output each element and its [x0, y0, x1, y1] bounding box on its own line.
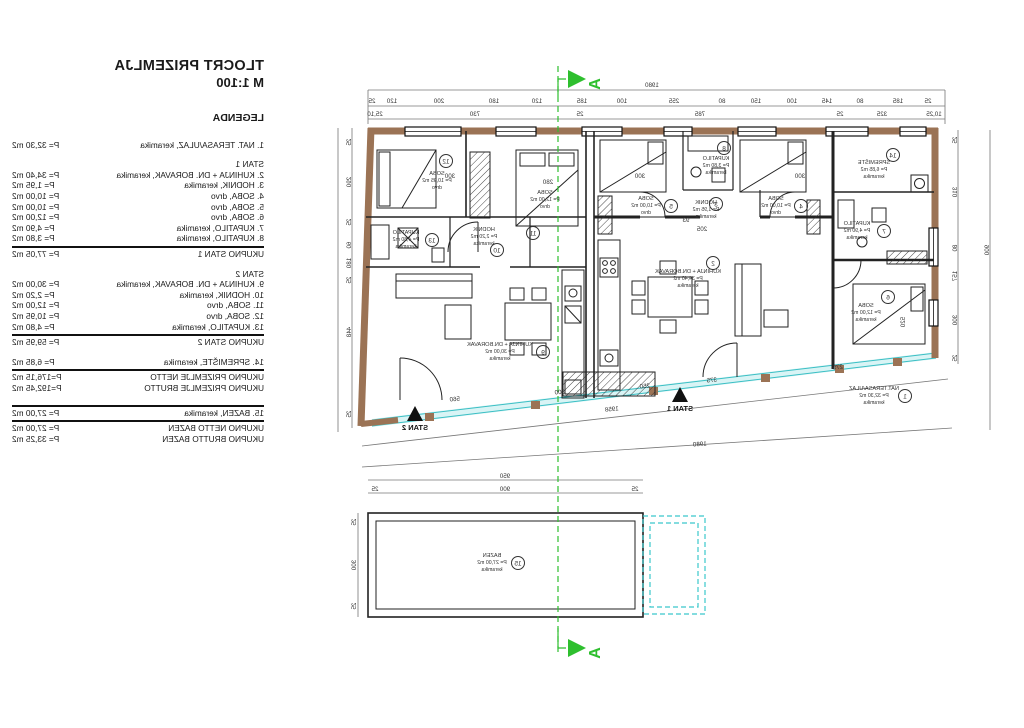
dim-label: 255: [668, 98, 679, 105]
legend-label: 4. SOBA, drvo: [211, 191, 264, 202]
dim-label: 275: [832, 363, 844, 371]
legend-label: STAN 1: [236, 159, 264, 170]
dim-label: 1980: [645, 82, 659, 89]
room-number: 12: [442, 158, 450, 165]
room-number: 10: [493, 247, 501, 254]
legend-area-value: P= 27,00 m2: [12, 408, 59, 419]
room-area: P= 27,00 m2: [477, 560, 507, 566]
dim-label: 25: [952, 137, 959, 144]
legend-label: 8. KUPATILO, keramika: [177, 233, 264, 244]
section-letter-top: A: [587, 78, 604, 90]
legend-label: 2. KUHINJA + DN. BORAVAK, keramika: [117, 170, 264, 181]
dim-label: 290: [346, 177, 353, 188]
room-area: P= 6,85 m2: [861, 167, 888, 173]
room-material: drvo: [540, 204, 550, 210]
room-name: KUHINJA + DN.BORAVAK: [655, 269, 721, 275]
room-material: keramika: [695, 214, 716, 220]
legend-row: 10. HODNIK, keramikaP= 2,20 m2: [12, 290, 264, 301]
blueprint-page: TLOCRT PRIZEMLJA M 1:100 LEGENDA 1. NAT.…: [0, 0, 1024, 728]
room-area: P= 34,40 m2: [673, 276, 703, 282]
section-arrows: [568, 70, 586, 657]
legend-area-value: P= 4,90 m2: [12, 223, 55, 234]
legend-area-value: P= 6,85 m2: [12, 357, 55, 368]
room-material: keramika: [677, 283, 698, 289]
legend-row: 6. SOBA, drvoP= 12,00 m2: [12, 212, 264, 223]
dim-label: 145: [821, 98, 832, 105]
legend-row: 11. SOBA, drvoP= 12,00 m2: [12, 300, 264, 311]
legend-area-value: P= 34,40 m2: [12, 170, 59, 181]
legend-area-value: P= 10,95 m2: [12, 311, 59, 322]
dim-label: 100: [616, 98, 627, 105]
room-material: keramika: [473, 241, 494, 247]
dim-label: 560: [449, 395, 461, 403]
legend-row: 13. KUPATILO, keramikaP= 4,80 m2: [12, 322, 264, 333]
legend-area-value: P=192,45 m2: [12, 383, 62, 394]
dim-label: 1980: [692, 441, 707, 449]
legend-label: 1. NAT. TERASA/ULAZ, keramika: [140, 140, 264, 151]
legend-area-value: P= 12,00 m2: [12, 300, 59, 311]
room-area: P= 12,00 m2: [530, 197, 560, 203]
dim-label: 80: [952, 245, 959, 252]
legend-label: 9. KUHINJA + DN. BORAVAK, keramika: [117, 279, 264, 290]
room-number: 2: [711, 260, 715, 267]
room-name: SOBA: [429, 171, 445, 177]
dim-label: 900: [499, 486, 510, 493]
legend-label: UKUPNO STAN 1: [198, 249, 264, 260]
legend-row: 14. SPREMIŠTE, keramikaP= 6,85 m2: [12, 357, 264, 368]
dim-label: 950: [499, 473, 510, 480]
dim-label: 157: [952, 271, 959, 282]
room-name: KUHINJA + DN.BORAVAK: [467, 342, 533, 348]
room-material: drvo: [432, 185, 442, 191]
dim-label: 25: [836, 111, 843, 118]
legend-row: UKUPNO PRIZEMLJE NETTOP=176,15 m2: [12, 372, 264, 383]
room-material: drvo: [771, 210, 781, 216]
legend-rule: [12, 369, 264, 371]
room-name: HODNIK: [473, 227, 495, 233]
dim-label: 25: [924, 98, 931, 105]
legend-row: 12. SOBA, drvoP= 10,95 m2: [12, 311, 264, 322]
dim-label: 185: [892, 98, 903, 105]
legend-area-value: P= 2,20 m2: [12, 290, 55, 301]
legend-label: 14. SPREMIŠTE, keramika: [164, 357, 264, 368]
room-number: 1: [903, 393, 907, 400]
room-area: P= 2,20 m2: [471, 234, 498, 240]
room-number: 9: [541, 349, 545, 356]
dim-label: 900: [984, 245, 991, 256]
dim-label: 25: [368, 98, 375, 105]
legend-label: UKUPNO NETTO BAZEN: [168, 423, 264, 434]
dim-label: 120: [386, 98, 397, 105]
entrance-label: STAN 1: [667, 404, 693, 413]
dim-label: 300: [351, 560, 358, 571]
legend-row: 8. KUPATILO, keramikaP= 3,80 m2: [12, 233, 264, 244]
legend-row: UKUPNO STAN 2P= 59,95 m2: [12, 337, 264, 348]
room-name: NAT.TERASA/ULAZ: [848, 386, 899, 392]
legend-row: 4. SOBA, drvoP= 10,00 m2: [12, 191, 264, 202]
room-number: 5: [669, 203, 673, 210]
dim-label: 280: [542, 179, 553, 186]
room-area: P= 10,00 m2: [761, 203, 791, 209]
legend-gap: [12, 348, 264, 357]
dim-label: 25: [346, 219, 353, 226]
legend-area-value: P= 30,00 m2: [12, 279, 59, 290]
legend-area-value: P= 4,80 m2: [12, 322, 55, 333]
dim-label: 80: [856, 98, 863, 105]
room-name: KUPATILO: [702, 156, 729, 162]
dim-label: 25: [351, 603, 358, 610]
legend-area-value: P= 32,30 m2: [12, 140, 59, 151]
dim-label: 120: [531, 98, 542, 105]
dim-label: 785: [694, 111, 705, 118]
room-name: SOBA: [858, 303, 874, 309]
room-number: 13: [428, 237, 436, 244]
drawing-title: TLOCRT PRIZEMLJA: [12, 58, 264, 75]
legend-row: UKUPNO STAN 1P= 77,05 m2: [12, 249, 264, 260]
legend-label: 10. HODNIK, keramika: [180, 290, 264, 301]
legend-label: UKUPNO BRUTTO BAZEN: [162, 434, 264, 445]
legend-area-value: P= 27,00 m2: [12, 423, 59, 434]
legend-label: 3. HODNIK, keramika: [184, 180, 264, 191]
legend-rule: [12, 420, 264, 422]
room-area: P= 12,00 m2: [851, 310, 881, 316]
legend-label: STAN 2: [236, 269, 264, 280]
room-material: keramika: [846, 235, 867, 241]
drawing-scale: M 1:100: [12, 75, 264, 90]
room-material: keramika: [855, 317, 876, 323]
legend-rows: 1. NAT. TERASA/ULAZ, keramikaP= 32,30 m2…: [12, 140, 264, 445]
dim-label: 10,25: [926, 111, 942, 118]
legend-label: 13. KUPATILO, keramika: [172, 322, 264, 333]
dim-label: 80: [718, 98, 725, 105]
legend-row: UKUPNO NETTO BAZENP= 27,00 m2: [12, 423, 264, 434]
room-area: P= 30,00 m2: [485, 349, 515, 355]
room-number: 14: [889, 152, 897, 159]
dim-label: 25: [346, 139, 353, 146]
dim-label: 310: [952, 187, 959, 198]
legend-label: 11. SOBA, drvo: [207, 300, 264, 311]
room-area: P= 3,80 m2: [703, 163, 730, 169]
dim-label: 150: [750, 98, 761, 105]
section-letter-bottom: A: [587, 647, 604, 659]
legend-area-value: P= 10,00 m2: [12, 202, 59, 213]
legend-section-header: STAN 1: [12, 159, 264, 170]
room-area: P= 10,95 m2: [422, 178, 452, 184]
room-name: SOBA: [537, 190, 553, 196]
dim-label: 185: [576, 98, 587, 105]
room-material: keramika: [863, 400, 884, 406]
room-area: P= 32,30 m2: [859, 393, 889, 399]
dim-label: 25: [346, 277, 353, 284]
legend-area-value: P= 3,80 m2: [12, 233, 55, 244]
dim-label: 300: [634, 173, 645, 180]
legend-rule: [12, 334, 264, 336]
legend-gap: [12, 260, 264, 269]
room-material: keramika: [395, 244, 416, 250]
legend-panel: TLOCRT PRIZEMLJA M 1:100 LEGENDA 1. NAT.…: [12, 58, 264, 444]
entrance-label: STAN 2: [402, 423, 428, 432]
legend-heading: LEGENDA: [12, 112, 264, 124]
door-arcs: [400, 192, 861, 400]
room-name: HODNIK: [695, 200, 717, 206]
legend-row: 7. KUPATILO, keramikaP= 4,90 m2: [12, 223, 264, 234]
room-number: 15: [514, 560, 522, 567]
legend-area-value: P= 77,05 m2: [12, 249, 59, 260]
dim-label: 25: [371, 486, 378, 493]
room-material: keramika: [863, 174, 884, 180]
room-name: KUPATILO: [392, 230, 419, 236]
legend-row: 9. KUHINJA + DN. BORAVAK, keramikaP= 30,…: [12, 279, 264, 290]
room-name: KUPATILO: [843, 221, 870, 227]
dim-label: 205: [696, 226, 707, 233]
room-material: keramika: [705, 170, 726, 176]
dim-label: 100: [786, 98, 797, 105]
dim-label: 520: [900, 317, 907, 328]
legend-section-header: STAN 2: [12, 269, 264, 280]
room-material: keramika: [481, 567, 502, 573]
legend-label: 7. KUPATILO, keramika: [177, 223, 264, 234]
room-area: P= 4,80 m2: [393, 237, 420, 243]
dim-label: 25,10: [367, 111, 383, 118]
dim-label: 200: [433, 98, 444, 105]
legend-rule: [12, 405, 264, 407]
dim-label: 730: [469, 111, 480, 118]
legend-row: 2. KUHINJA + DN. BORAVAK, keramikaP= 34,…: [12, 170, 264, 181]
dim-label: 25: [576, 111, 583, 118]
dim-label: 250: [639, 382, 651, 390]
dim-label: 25: [952, 355, 959, 362]
dim-label: 325: [876, 111, 887, 118]
legend-row: UKUPNO PRIZEMLJE BRUTTOP=192,45 m2: [12, 383, 264, 394]
room-name: SPREMIŠTE: [858, 159, 891, 166]
dim-label: 300: [794, 173, 805, 180]
legend-area-value: P= 59,95 m2: [12, 337, 59, 348]
legend-row: 1. NAT. TERASA/ULAZ, keramikaP= 32,30 m2: [12, 140, 264, 151]
legend-label: 12. SOBA, drvo: [206, 311, 264, 322]
room-area: P= 4,90 m2: [844, 228, 871, 234]
legend-area-value: P= 12,00 m2: [12, 212, 59, 223]
dim-label: 25: [631, 486, 638, 493]
room-number: 11: [529, 230, 536, 237]
room-name: BAZEN: [483, 553, 502, 559]
dim-label: 180: [488, 98, 499, 105]
legend-row: UKUPNO BRUTTO BAZENP= 33,25 m2: [12, 434, 264, 445]
dim-label: 25: [346, 411, 353, 418]
interior-walls: [366, 131, 934, 398]
legend-label: UKUPNO STAN 2: [198, 337, 264, 348]
room-name: SOBA: [768, 196, 784, 202]
dim-label: 300: [952, 315, 959, 326]
legend-row: 15. BAZEN, keramikaP= 27,00 m2: [12, 408, 264, 419]
room-number: 6: [886, 294, 890, 301]
room-material: keramika: [489, 356, 510, 362]
annotations: STAN 2STAN 1AA: [402, 78, 693, 659]
legend-label: 6. SOBA, drvo: [211, 212, 264, 223]
legend-row: 3. HODNIK, keramikaP= 1,95 m2: [12, 180, 264, 191]
legend-rule: [12, 246, 264, 248]
room-material: drvo: [641, 210, 651, 216]
dim-label: 25: [351, 519, 358, 526]
dim-label: 60: [346, 242, 353, 249]
dim-label: 300: [554, 388, 566, 396]
legend-label: UKUPNO PRIZEMLJE NETTO: [150, 372, 264, 383]
room-number: 7: [882, 228, 886, 235]
legend-area-value: P= 33,25 m2: [12, 434, 59, 445]
legend-area-value: P= 10,00 m2: [12, 191, 59, 202]
pool: [368, 513, 705, 617]
room-number: 8: [722, 145, 726, 152]
dim-label: 1958: [604, 405, 619, 413]
dim-label: 375: [706, 376, 718, 384]
room-number: 4: [799, 203, 803, 210]
legend-row: 5. SOBA, drvoP= 10,00 m2: [12, 202, 264, 213]
room-name: SOBA: [638, 196, 654, 202]
legend-gap: [12, 150, 264, 159]
dim-label: 180: [346, 258, 353, 269]
dim-label: 448: [346, 327, 353, 338]
room-area: P= 10,00 m2: [631, 203, 661, 209]
room-area: P= 1,95 m2: [693, 207, 720, 213]
legend-label: 5. SOBA, drvo: [211, 202, 264, 213]
legend-area-value: P= 1,95 m2: [12, 180, 55, 191]
legend-label: UKUPNO PRIZEMLJE BRUTTO: [144, 383, 264, 394]
legend-label: 15. BAZEN, keramika: [184, 408, 264, 419]
legend-area-value: P=176,15 m2: [12, 372, 62, 383]
dim-label: 93: [682, 217, 689, 224]
legend-gap: [12, 394, 264, 403]
